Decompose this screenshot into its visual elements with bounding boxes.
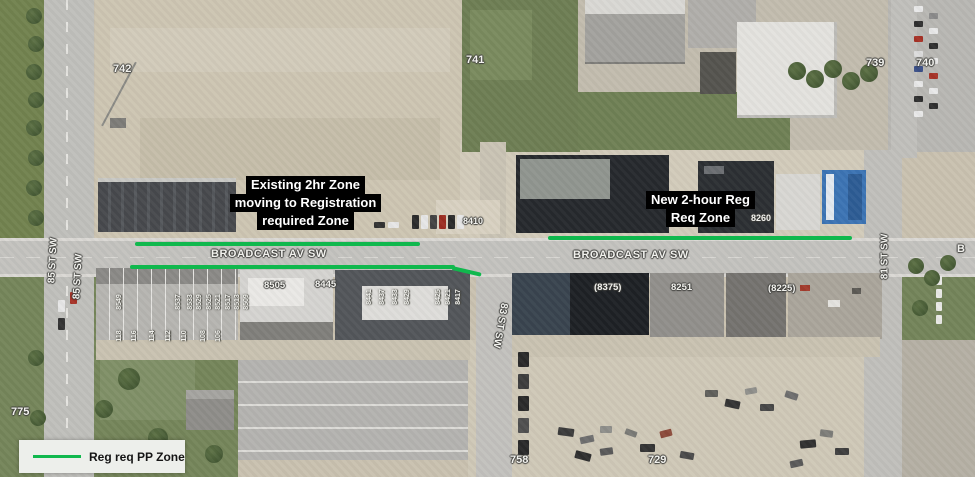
unit-number: 112 bbox=[165, 323, 173, 349]
callout-existing-line2: moving to Registration bbox=[230, 194, 382, 212]
building bbox=[585, 0, 685, 14]
unit-number: 8509 bbox=[243, 289, 251, 315]
unit-number: 116 bbox=[131, 323, 139, 349]
callout-existing-zone: Existing 2hr Zone moving to Registration… bbox=[218, 176, 393, 230]
construction-speck bbox=[852, 288, 861, 294]
building-blue-stripe bbox=[848, 174, 862, 220]
tree bbox=[28, 210, 44, 226]
equipment bbox=[800, 439, 817, 448]
tree bbox=[28, 36, 44, 52]
street-label-broadcast-edge: B bbox=[957, 243, 965, 255]
dirt-streak bbox=[140, 118, 440, 180]
car bbox=[412, 215, 419, 229]
car bbox=[929, 43, 938, 49]
tree bbox=[30, 410, 46, 426]
construction-speck bbox=[828, 300, 840, 307]
parcel-8445: 8445 bbox=[315, 279, 336, 290]
equipment bbox=[600, 426, 612, 433]
car bbox=[929, 13, 938, 19]
zone-line-east-north bbox=[548, 236, 852, 240]
unit-number: 8421 bbox=[445, 284, 453, 310]
car bbox=[929, 103, 938, 109]
tree bbox=[788, 62, 806, 80]
building-roof-section bbox=[240, 322, 333, 340]
unit-number: 8425 bbox=[435, 284, 443, 310]
car bbox=[936, 289, 942, 298]
tree bbox=[28, 350, 44, 366]
tree bbox=[95, 400, 113, 418]
parking-lines bbox=[238, 360, 468, 460]
aerial-map: BROADCAST AV SW BROADCAST AV SW B 85 ST … bbox=[0, 0, 975, 477]
unit-number: 8417 bbox=[455, 284, 463, 310]
unit-number: 118 bbox=[116, 323, 124, 349]
building bbox=[700, 52, 736, 94]
unit-number: 8549 bbox=[116, 289, 124, 315]
street-label-broadcast-east: BROADCAST AV SW bbox=[573, 249, 689, 261]
road-center-line bbox=[0, 257, 975, 258]
truck bbox=[518, 374, 529, 389]
parcel-8251: 8251 bbox=[671, 282, 692, 293]
zone-line-west-north bbox=[135, 242, 420, 246]
parcel-758: 758 bbox=[510, 454, 528, 466]
crane-base bbox=[110, 118, 126, 128]
tree bbox=[28, 150, 44, 166]
truck bbox=[518, 418, 529, 433]
tree bbox=[824, 60, 842, 78]
tree bbox=[912, 300, 928, 316]
dirt-streak bbox=[110, 28, 450, 72]
parcel-8225: (8225) bbox=[768, 283, 795, 294]
zone-line-west-south bbox=[130, 265, 455, 269]
car bbox=[914, 36, 923, 42]
car bbox=[914, 111, 923, 117]
unit-number: 8521 bbox=[215, 289, 223, 315]
truck bbox=[518, 440, 529, 455]
unit-number: 110 bbox=[181, 323, 189, 349]
parcel-775: 775 bbox=[11, 406, 29, 418]
unit-number: 8525 bbox=[206, 289, 214, 315]
parcel-741: 741 bbox=[466, 54, 484, 66]
building-blue-stripe bbox=[826, 174, 834, 220]
construction-speck bbox=[800, 285, 810, 291]
parcel-8375: (8375) bbox=[594, 282, 621, 293]
tree bbox=[924, 270, 940, 286]
parcel-739: 739 bbox=[866, 57, 884, 69]
equipment bbox=[760, 404, 774, 411]
unit-number: 8441 bbox=[366, 284, 374, 310]
unit-number: 8533 bbox=[187, 289, 195, 315]
parcel-8505: 8505 bbox=[264, 280, 285, 291]
building bbox=[98, 182, 236, 232]
parcel-742: 742 bbox=[113, 63, 131, 75]
tree bbox=[26, 8, 42, 24]
car bbox=[914, 21, 923, 27]
callout-existing-line3: required Zone bbox=[257, 212, 354, 230]
car bbox=[914, 81, 923, 87]
unit-number: 108 bbox=[200, 323, 208, 349]
legend-line-sample bbox=[33, 455, 81, 458]
car bbox=[430, 215, 437, 229]
car bbox=[936, 315, 942, 324]
building-roof-section bbox=[520, 159, 610, 199]
callout-new-line1: New 2-hour Reg bbox=[646, 191, 755, 209]
unit-number: 8529 bbox=[196, 289, 204, 315]
tree bbox=[118, 368, 140, 390]
car bbox=[439, 215, 446, 229]
alley bbox=[512, 337, 880, 357]
tree bbox=[842, 72, 860, 90]
building-roof-mark bbox=[704, 166, 724, 174]
building bbox=[776, 174, 820, 230]
truck bbox=[518, 352, 529, 367]
tree bbox=[26, 180, 42, 196]
building-roof-section bbox=[512, 273, 570, 335]
street-label-81st: 81 ST SW bbox=[880, 227, 891, 287]
unit-number: 8433 bbox=[392, 284, 400, 310]
unit-number: 106 bbox=[215, 323, 223, 349]
equipment bbox=[640, 444, 655, 452]
car bbox=[929, 88, 938, 94]
unit-number: 8437 bbox=[379, 284, 387, 310]
equipment bbox=[835, 448, 849, 455]
tree bbox=[28, 92, 44, 108]
car bbox=[448, 215, 455, 229]
car bbox=[421, 215, 428, 229]
tree bbox=[940, 255, 956, 271]
parcel-8410: 8410 bbox=[463, 216, 483, 226]
tree bbox=[26, 64, 42, 80]
house-roof-ridge bbox=[186, 390, 234, 399]
car bbox=[914, 96, 923, 102]
car bbox=[929, 28, 938, 34]
truck bbox=[518, 396, 529, 411]
unit-number: 8513 bbox=[234, 289, 242, 315]
unit-number: 114 bbox=[149, 323, 157, 349]
callout-existing-line1: Existing 2hr Zone bbox=[246, 176, 365, 194]
callout-new-zone: New 2-hour Reg Req Zone bbox=[628, 191, 773, 227]
car bbox=[58, 300, 65, 312]
tree bbox=[205, 445, 223, 463]
callout-new-line2: Req Zone bbox=[666, 209, 735, 227]
unit-number: 8517 bbox=[225, 289, 233, 315]
street-label-broadcast-west: BROADCAST AV SW bbox=[211, 248, 327, 260]
tree bbox=[908, 258, 924, 274]
car bbox=[58, 318, 65, 330]
car bbox=[914, 6, 923, 12]
parcel-729: 729 bbox=[648, 454, 666, 466]
tree bbox=[26, 120, 42, 136]
equipment bbox=[705, 390, 718, 397]
unit-number: 8537 bbox=[175, 289, 183, 315]
parcel-740: 740 bbox=[916, 57, 934, 69]
tree bbox=[806, 70, 824, 88]
legend: Reg req PP Zone bbox=[19, 440, 185, 473]
car bbox=[936, 302, 942, 311]
car bbox=[929, 73, 938, 79]
building bbox=[737, 22, 837, 118]
legend-label: Reg req PP Zone bbox=[89, 450, 185, 464]
unit-number: 8429 bbox=[404, 284, 412, 310]
grass bbox=[100, 358, 195, 420]
grass bbox=[470, 10, 532, 80]
